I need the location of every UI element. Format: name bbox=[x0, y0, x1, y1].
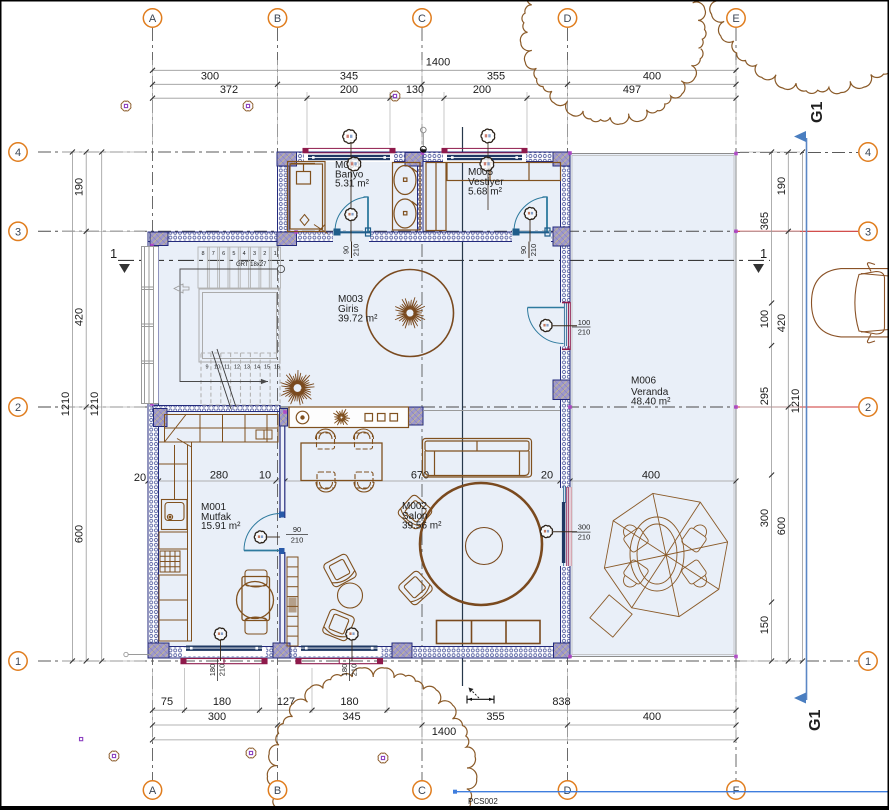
svg-text:13: 13 bbox=[244, 365, 250, 371]
svg-text:372: 372 bbox=[220, 84, 238, 96]
svg-text:345: 345 bbox=[340, 70, 358, 82]
svg-text:210: 210 bbox=[352, 244, 361, 257]
svg-text:4: 4 bbox=[865, 147, 871, 159]
svg-text:600: 600 bbox=[776, 517, 788, 535]
svg-text:100: 100 bbox=[759, 310, 771, 328]
svg-text:1400: 1400 bbox=[432, 726, 456, 738]
svg-text:15: 15 bbox=[264, 365, 270, 371]
svg-text:1: 1 bbox=[760, 246, 767, 261]
svg-text:7: 7 bbox=[212, 251, 215, 257]
svg-text:6: 6 bbox=[222, 251, 225, 257]
svg-text:300: 300 bbox=[759, 509, 771, 527]
svg-text:5.31 m²: 5.31 m² bbox=[335, 179, 370, 190]
svg-text:14: 14 bbox=[254, 365, 260, 371]
svg-text:B: B bbox=[274, 785, 281, 797]
svg-text:M006: M006 bbox=[631, 376, 656, 387]
svg-text:180: 180 bbox=[213, 696, 231, 708]
svg-text:2: 2 bbox=[263, 251, 266, 257]
svg-text:210: 210 bbox=[578, 533, 591, 542]
svg-text:G1: G1 bbox=[809, 102, 826, 123]
svg-text:1210: 1210 bbox=[790, 389, 802, 413]
svg-text:C: C bbox=[418, 785, 426, 797]
svg-text:210: 210 bbox=[291, 536, 304, 545]
svg-text:280: 280 bbox=[210, 469, 228, 481]
svg-text:C: C bbox=[418, 13, 426, 25]
svg-text:16: 16 bbox=[274, 365, 280, 371]
svg-text:1210: 1210 bbox=[89, 392, 101, 416]
svg-text:90: 90 bbox=[293, 525, 301, 534]
svg-text:39.56 m²: 39.56 m² bbox=[402, 521, 442, 532]
svg-text:150: 150 bbox=[759, 616, 771, 634]
svg-text:300: 300 bbox=[208, 711, 226, 723]
svg-text:355: 355 bbox=[486, 711, 504, 723]
svg-text:210: 210 bbox=[218, 664, 227, 677]
svg-text:295: 295 bbox=[759, 387, 771, 405]
svg-text:8: 8 bbox=[201, 251, 204, 257]
svg-text:300: 300 bbox=[201, 70, 219, 82]
svg-text:10: 10 bbox=[259, 469, 271, 481]
svg-text:420: 420 bbox=[776, 314, 788, 332]
svg-text:180: 180 bbox=[340, 664, 349, 677]
svg-text:A: A bbox=[149, 13, 157, 25]
svg-text:210: 210 bbox=[578, 327, 591, 336]
svg-text:180: 180 bbox=[340, 696, 358, 708]
svg-text:100: 100 bbox=[578, 318, 591, 327]
svg-text:1: 1 bbox=[110, 246, 117, 261]
svg-text:600: 600 bbox=[74, 525, 86, 543]
svg-text:39.72 m²: 39.72 m² bbox=[338, 314, 378, 325]
svg-text:180: 180 bbox=[208, 664, 217, 677]
svg-text:20: 20 bbox=[541, 469, 553, 481]
svg-text:400: 400 bbox=[643, 711, 661, 723]
svg-text:PCS002: PCS002 bbox=[468, 797, 498, 806]
svg-text:2: 2 bbox=[15, 402, 21, 414]
svg-text:210: 210 bbox=[350, 664, 359, 677]
svg-text:A: A bbox=[149, 785, 157, 797]
svg-text:1: 1 bbox=[274, 251, 277, 257]
svg-text:9: 9 bbox=[205, 365, 208, 371]
svg-text:90: 90 bbox=[342, 246, 351, 254]
svg-text:4: 4 bbox=[243, 251, 246, 257]
svg-text:3: 3 bbox=[865, 226, 871, 238]
svg-text:127: 127 bbox=[277, 696, 295, 708]
svg-text:130: 130 bbox=[406, 84, 424, 96]
svg-text:190: 190 bbox=[776, 177, 788, 195]
svg-text:420: 420 bbox=[74, 308, 86, 326]
svg-text:2: 2 bbox=[865, 402, 871, 414]
svg-text:210: 210 bbox=[529, 244, 538, 257]
svg-text:300: 300 bbox=[578, 523, 591, 532]
svg-text:200: 200 bbox=[340, 84, 358, 96]
svg-text:G1: G1 bbox=[807, 710, 824, 731]
svg-text:12: 12 bbox=[234, 365, 240, 371]
svg-text:5: 5 bbox=[232, 251, 235, 257]
svg-text:200: 200 bbox=[473, 84, 491, 96]
svg-text:190: 190 bbox=[74, 178, 86, 196]
svg-text:75: 75 bbox=[161, 696, 173, 708]
svg-text:3: 3 bbox=[253, 251, 256, 257]
svg-text:11: 11 bbox=[224, 365, 230, 371]
svg-text:20: 20 bbox=[134, 472, 146, 484]
svg-text:GRT 18x27: GRT 18x27 bbox=[236, 262, 267, 268]
svg-text:365: 365 bbox=[759, 212, 771, 230]
svg-text:4: 4 bbox=[15, 147, 21, 159]
svg-text:838: 838 bbox=[552, 696, 570, 708]
svg-text:1400: 1400 bbox=[426, 56, 450, 68]
svg-text:5.68 m²: 5.68 m² bbox=[468, 187, 503, 198]
svg-text:48.40 m²: 48.40 m² bbox=[631, 397, 671, 408]
svg-text:E: E bbox=[732, 13, 739, 25]
svg-text:400: 400 bbox=[642, 469, 660, 481]
svg-text:1: 1 bbox=[15, 656, 21, 668]
svg-text:345: 345 bbox=[342, 711, 360, 723]
svg-text:90: 90 bbox=[519, 246, 528, 254]
svg-text:B: B bbox=[274, 13, 281, 25]
svg-text:3: 3 bbox=[15, 226, 21, 238]
svg-text:400: 400 bbox=[643, 70, 661, 82]
svg-text:497: 497 bbox=[623, 84, 641, 96]
svg-text:15.91 m²: 15.91 m² bbox=[201, 521, 241, 532]
svg-text:1210: 1210 bbox=[60, 392, 72, 416]
svg-text:1: 1 bbox=[865, 656, 871, 668]
svg-text:355: 355 bbox=[487, 70, 505, 82]
svg-text:D: D bbox=[564, 13, 572, 25]
